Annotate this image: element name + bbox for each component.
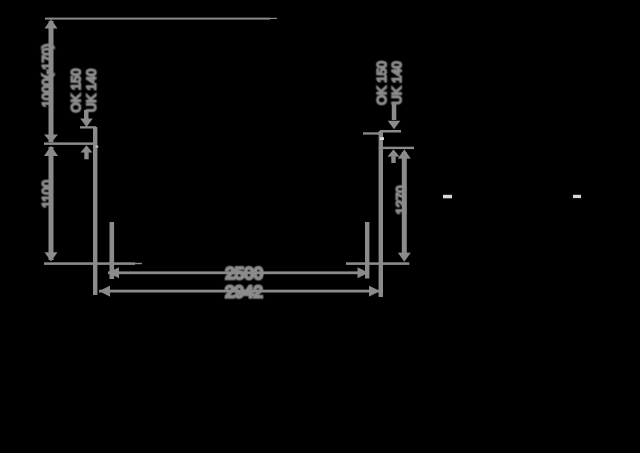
svg-text:2942: 2942 <box>225 283 263 302</box>
svg-text:OK 150: OK 150 <box>374 61 389 105</box>
svg-text:UK 140: UK 140 <box>84 69 99 112</box>
svg-text:OK 150: OK 150 <box>68 68 83 112</box>
svg-text:1270: 1270 <box>393 186 408 215</box>
svg-text:UK 140: UK 140 <box>389 61 404 104</box>
svg-text:1100: 1100 <box>39 180 54 208</box>
svg-text:1000(-170): 1000(-170) <box>39 44 54 108</box>
svg-text:2500: 2500 <box>225 264 263 283</box>
